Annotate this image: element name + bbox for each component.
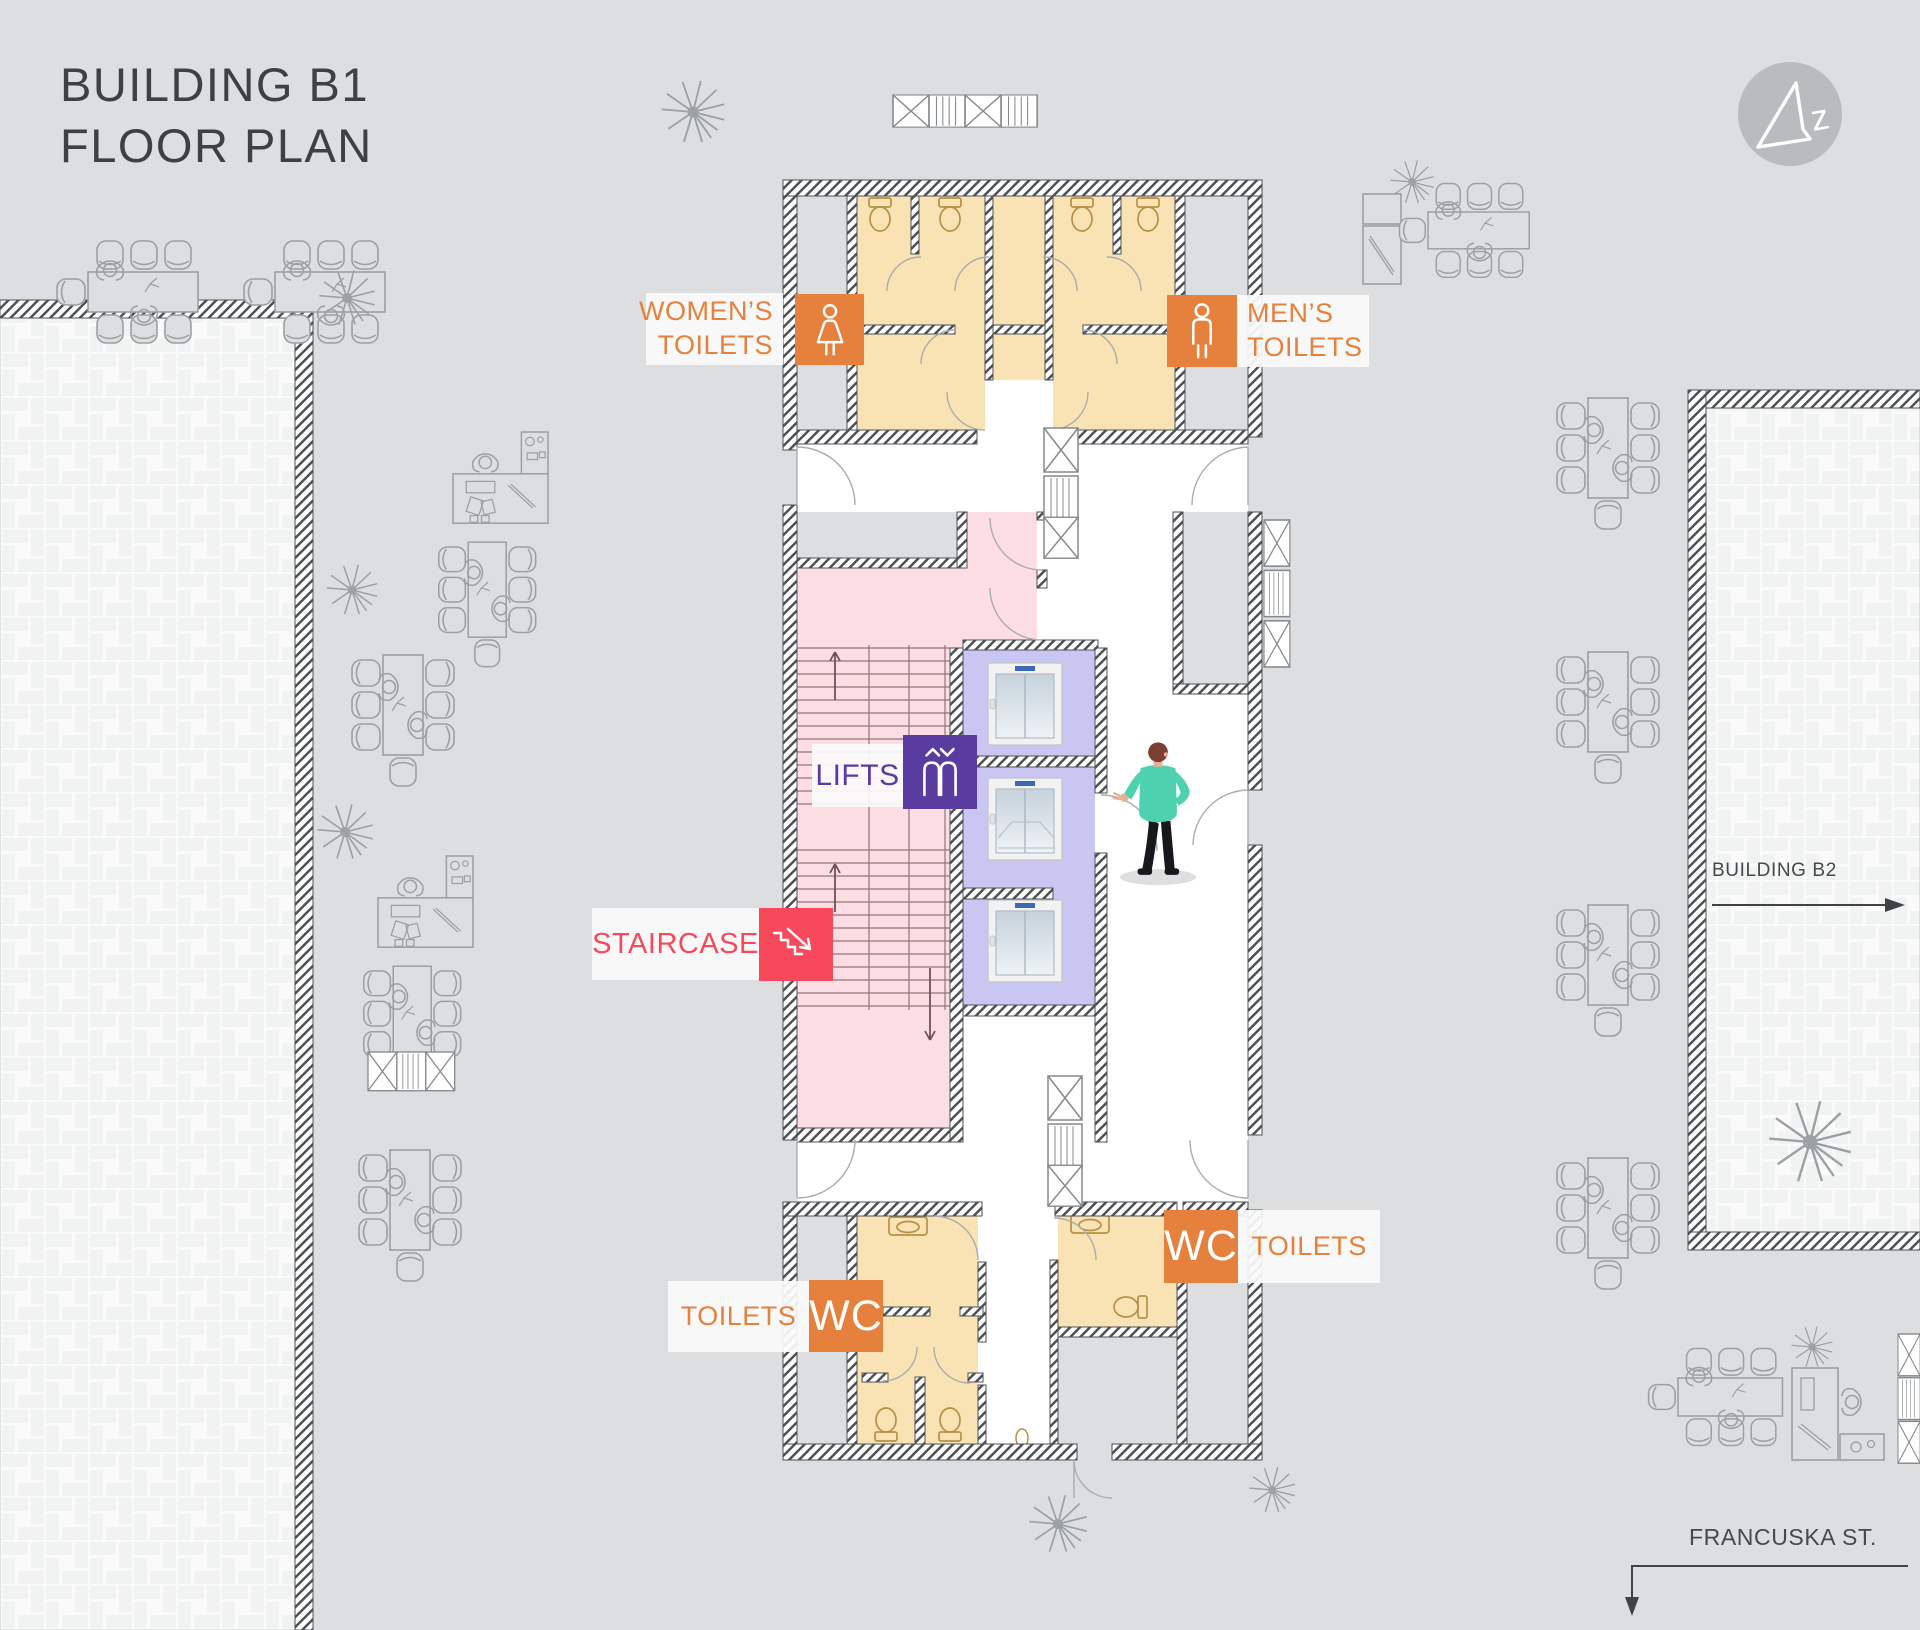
shaft-boxes	[1264, 520, 1290, 667]
toilets-east-text: TOILETS	[1251, 1230, 1367, 1264]
wc-text: WC	[809, 1292, 883, 1341]
mens-toilets-badge	[1167, 295, 1237, 367]
toilets-southwest-text: TOILETS	[681, 1300, 797, 1334]
street-arrow	[1625, 1566, 1908, 1616]
staircase-label: STAIRCASE	[592, 908, 759, 980]
mens-toilets-label: MEN’S TOILETS	[1237, 295, 1369, 367]
stairs-down-icon	[770, 922, 822, 968]
plant-icon	[662, 81, 724, 142]
north-compass-icon: z	[1738, 62, 1842, 166]
meeting-table	[352, 655, 454, 786]
meeting-table	[1557, 398, 1659, 529]
lifts	[988, 663, 1062, 982]
title-line1: BUILDING B1	[60, 58, 369, 111]
lifts-badge	[903, 735, 977, 809]
womens-toilets-label: WOMEN’S TOILETS	[646, 293, 783, 365]
meeting-table	[1557, 1158, 1659, 1289]
courtyard-area	[0, 300, 313, 1630]
womens-toilets-badge	[795, 294, 864, 365]
b2-wall-left	[1688, 390, 1706, 1250]
courtyard-wall-right	[295, 300, 313, 1630]
lifts-text: LIFTS	[815, 757, 899, 795]
wc-badge-east: WC	[1164, 1210, 1238, 1283]
staircase-text: STAIRCASE	[592, 926, 759, 962]
window-strip	[368, 1052, 455, 1091]
plant-icon	[1029, 1495, 1087, 1551]
mens-toilets-line2: TOILETS	[1247, 331, 1363, 365]
meeting-table	[1557, 652, 1659, 783]
shaft-boxes	[1048, 1076, 1082, 1206]
lifts-label: LIFTS	[812, 744, 903, 807]
floor-plan-drawing: z	[0, 0, 1920, 1630]
womens-toilet-room	[857, 196, 985, 430]
lift-icon	[917, 745, 963, 799]
toilets-southwest-label: TOILETS	[668, 1281, 809, 1352]
staircase-room	[797, 648, 950, 1128]
plant-icon	[317, 804, 372, 858]
street-note: FRANCUSKA ST.	[1689, 1524, 1877, 1551]
wc-badge-southwest: WC	[809, 1280, 883, 1352]
window-strip-top	[893, 95, 1037, 127]
page-title: BUILDING B1 FLOOR PLAN	[60, 54, 373, 176]
toilets-east-label: TOILETS	[1238, 1210, 1380, 1283]
workstation-cluster	[439, 432, 548, 667]
wc-text: WC	[1164, 1222, 1238, 1271]
plant-icon	[1249, 1467, 1295, 1512]
floor-plan-page: z BUILDING B1 FLOOR PLAN WOMEN’S TOILETS…	[0, 0, 1920, 1630]
shaft-boxes	[1044, 428, 1078, 558]
meeting-table	[359, 1150, 461, 1281]
b2-wall-top	[1688, 390, 1920, 408]
man-icon	[1183, 302, 1221, 360]
womens-toilets-line2: TOILETS	[657, 329, 773, 363]
staircase-badge	[759, 908, 833, 981]
building-b2-note: BUILDING B2	[1712, 860, 1837, 882]
womens-toilets-line1: WOMEN’S	[639, 295, 773, 329]
lift-car	[988, 900, 1062, 982]
plant-icon	[327, 565, 377, 614]
shaft-boxes	[1898, 1334, 1920, 1463]
lift-car	[988, 663, 1062, 745]
meeting-table	[1557, 905, 1659, 1036]
workstation-cluster	[1363, 160, 1529, 284]
title-line2: FLOOR PLAN	[60, 119, 373, 172]
woman-icon	[810, 302, 850, 358]
mens-toilets-line1: MEN’S	[1247, 297, 1334, 331]
b2-wall-bottom	[1688, 1232, 1920, 1250]
building-b2-area	[1688, 390, 1920, 1250]
